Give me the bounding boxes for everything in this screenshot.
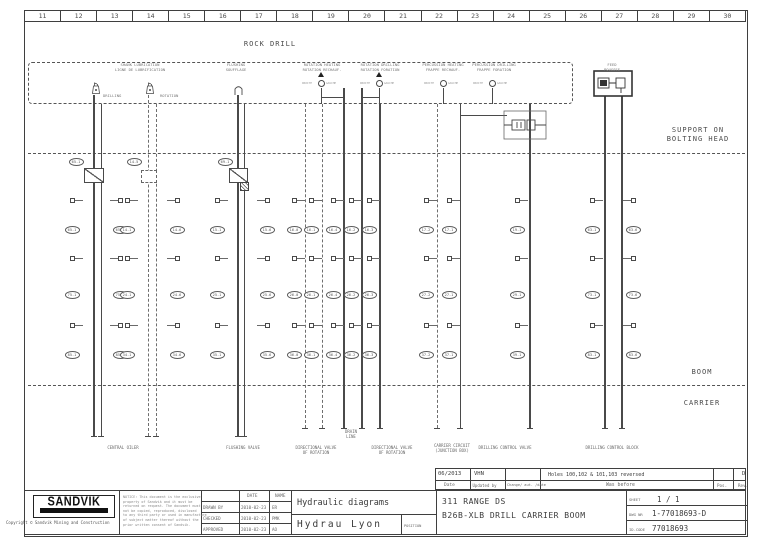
copyright-text: Copyright © Sandvik Mining and Construct… [6,520,110,525]
connector-line [460,115,507,116]
coupling-leader [623,325,631,326]
coupling-leader [297,325,305,326]
quick-coupling-square [118,198,123,203]
hose-ref-label: 34.1 [120,351,135,359]
hose-ref-label: 16.0 [287,226,302,234]
coupling-leader [110,200,118,201]
revision-rev-value: D [742,471,745,477]
zone-separator-line [28,153,745,154]
circle-valve-icon [489,80,496,87]
valve-side-label: DROITE [424,81,434,85]
line-end-tick [602,428,608,429]
revision-updated-by-header: Updated by [473,483,497,488]
hydraulic-line-dashed [156,104,157,436]
hose-ref-label: 83.1 [585,351,600,359]
hydraulic-line [379,104,381,428]
schematic-caption: DRAIN LINE [345,429,357,439]
approvals-line [201,523,291,524]
valve-side-label: GAUCHE [326,81,336,85]
position-label: POSITION [404,524,421,528]
tb-divider-h [626,520,747,521]
valve-side-label: GAUCHE [497,81,507,85]
coupling-leader [623,200,631,201]
coupling-leader [452,200,460,201]
revision-updated-by-value: VHN [474,471,484,477]
hydraulic-line [492,88,493,104]
coupling-leader [257,325,265,326]
approval-date: 2010-02-23 [241,516,266,521]
hose-ref-label: 65.1 [69,158,84,166]
hose-ref-label: 36.2 [344,351,359,359]
coupling-leader [314,200,322,201]
approval-name: AO [272,527,277,532]
legal-notice: NOTICE: This document is the exclusive p… [123,495,199,527]
circle-valve-icon [440,80,447,87]
hose-ref-label: 16.2 [344,226,359,234]
valve-side-label: DROITE [360,81,370,85]
component-label: SHANK LUBRICATION LIGNE DE LUBRIFICATION [115,63,165,73]
title-block: SANDVIK Copyright © Sandvik Mining and C… [24,490,746,535]
hose-ref-label: 14.5 [127,158,142,166]
line-end-tick [302,428,308,429]
coupling-leader [452,258,460,259]
schematic-caption: DIRECTIONAL VALVE OF ROTATION [296,445,337,455]
hatched-port [240,182,249,191]
hydraulic-line [244,104,245,436]
line-end-tick [457,428,463,429]
coupling-leader [110,325,118,326]
hydraulic-line [460,104,461,428]
schematic-caption: CARRIER CIRCUIT (JUNCTION BOX) [434,443,470,453]
schematic-caption: CENTRAL OILER [107,445,138,450]
hose-ref-label: 26.0 [287,291,302,299]
component-label: PERCUSSION HEATING FRAPPE RECHAUF. [422,63,463,73]
project-range: 311 RANGE DS [442,497,506,506]
coupling-leader [595,200,603,201]
quick-coupling-square [265,256,270,261]
coupling-leader [354,258,362,259]
hose-ref-label: 14.6 [170,226,185,234]
hose-ref-label: 37.2 [419,351,434,359]
coupling-leader [372,325,380,326]
line-end-tick [527,428,533,429]
feed-block-icon [593,70,633,97]
hose-ref-label: 15.6 [260,226,275,234]
schematic-layer: 65.165.614.114.615.115.616.016.116.416.2… [0,0,768,542]
support-on-bolting-head-label: SUPPORT ON BOLTING HEAD [652,126,744,144]
oiler-icon [90,80,102,94]
quick-coupling-square [175,198,180,203]
revision-date-value: 06/2013 [438,471,461,477]
hose-ref-label: 24.1 [120,291,135,299]
coupling-leader [429,325,437,326]
schematic-caption: DRILLING CONTROL BLOCK [586,445,639,450]
hose-ref-label: 37.1 [442,351,457,359]
quick-coupling-square [175,323,180,328]
connector-line [362,97,379,98]
component-label: ROTATION DRILLING ROTATION FORATION [361,63,400,73]
hydraulic-line [93,95,95,436]
tb-divider-h [626,505,747,506]
quick-coupling-square [631,256,636,261]
check-valve-assembly [503,110,547,140]
idcode-value: 77018693 [652,524,688,533]
hose-ref-label: 39.1 [510,351,525,359]
coupling-leader [623,258,631,259]
approvals-line [201,501,291,502]
revision-pos-header: Pos. [717,483,727,488]
carrier-label: CARRIER [672,399,732,407]
hose-ref-label: 63.1 [585,226,600,234]
sheet-label: SHEET [629,497,640,502]
coupling-leader [314,325,322,326]
hose-ref-label: 16.4 [326,226,341,234]
valve-block-dashed [141,170,157,183]
hose-ref-label: 15.1 [210,226,225,234]
coupling-leader [167,325,175,326]
hydraulic-line [529,104,531,428]
hose-ref-label: 63.6 [626,226,641,234]
coupling-leader [110,258,118,259]
line-end-tick [145,436,151,437]
hose-ref-label: 75.1 [65,291,80,299]
tb-divider [626,491,627,534]
office-name: Hydrau Lyon [297,519,382,530]
flow-arrow-icon [376,72,382,77]
line-end-tick [619,428,625,429]
revision-was-before-header: Was before [606,483,635,488]
revision-change-header: Change/ aut. /date [507,483,546,487]
valve-side-label: GAUCHE [448,81,458,85]
revision-col [733,469,734,489]
connector-line [321,97,344,98]
approvals-line [201,512,291,513]
coupling-leader [75,325,83,326]
hose-ref-label: 16.1 [304,226,319,234]
quick-coupling-square [631,198,636,203]
hose-ref-label: 16.3 [362,226,377,234]
department-name: Hydraulic diagrams [297,498,389,508]
coupling-leader [75,200,83,201]
coupling-leader [336,258,344,259]
component-label: FLUSHING SOUFFLAGE [226,63,247,73]
idcode-label: ID-CODE [629,527,645,532]
line-end-tick [377,428,383,429]
coupling-leader [130,200,138,201]
hose-ref-label: 35.6 [260,351,275,359]
coupling-leader [520,325,528,326]
line-end-tick [319,428,325,429]
approval-name: PMK [272,516,280,521]
approval-date: 2010-02-23 [241,505,266,510]
approval-role: DRAWN BY [203,505,223,510]
hydraulic-line-dashed [437,104,438,428]
coupling-leader [429,200,437,201]
coupling-leader [595,258,603,259]
hose-ref-label: 27.1 [442,291,457,299]
hydraulic-line [237,95,239,436]
line-end-tick [153,436,159,437]
schematic-caption: DIRECTIONAL VALVE OF ROTATION [372,445,413,455]
valve-block [84,168,104,183]
coupling-leader [257,258,265,259]
coupling-leader [429,258,437,259]
tb-divider [291,491,292,534]
hose-ref-label: 24.6 [170,291,185,299]
hose-ref-label: 34.6 [170,351,185,359]
hose-ref-label: 17.2 [419,226,434,234]
coupling-leader [372,200,380,201]
tb-divider-h [291,514,436,515]
coupling-leader [520,200,528,201]
hose-ref-label: 69.1 [218,158,233,166]
coupling-leader [314,258,322,259]
line-end-tick [434,428,440,429]
hydraulic-line-dashed [148,95,149,436]
hose-ref-label: 36.1 [304,351,319,359]
coupling-leader [220,200,228,201]
revision-strip: 06/2013 VHN Holes 100,102 & 101,103 reve… [435,468,746,490]
approvals-date-header: DATE [247,494,258,499]
coupling-leader [452,325,460,326]
hose-ref-label: 27.2 [419,291,434,299]
approval-role: CHECKED [203,516,221,521]
hydraulic-line-dashed [305,104,306,428]
hose-ref-label: 26.4 [326,291,341,299]
valve-side-label: GAUCHE [384,81,394,85]
hose-ref-label: 25.1 [210,291,225,299]
coupling-leader [167,258,175,259]
component-label: DRILLING [103,94,121,99]
tb-divider [436,491,437,534]
hose-ref-label: 26.3 [362,291,377,299]
flushing-icon [233,81,244,93]
hydraulic-line [321,88,322,104]
quick-coupling-square [175,256,180,261]
hose-ref-label: 36.0 [287,351,302,359]
approvals-table: DATE NAME DRAWN BY 2010-02-23 ER CHECKED… [201,491,291,534]
quick-coupling-square [265,198,270,203]
coupling-leader [336,200,344,201]
revision-col [470,469,471,489]
valve-side-label: DROITE [302,81,312,85]
hydraulic-line [443,88,444,104]
sandvik-logo-text: SANDVIK [34,495,114,509]
approval-role: APPROVED [203,527,223,532]
sandvik-logo: SANDVIK [33,495,115,518]
hose-ref-label: 35.1 [210,351,225,359]
component-label: PERCUSSION DRILLING FRAPPE FORATION [472,63,515,73]
circle-valve-icon [318,80,325,87]
schematic-caption: DRILLING CONTROL VALVE [479,445,532,450]
circle-valve-icon [376,80,383,87]
schematic-caption: FLUSHING VALVE [226,445,260,450]
quick-coupling-square [118,323,123,328]
boom-label: BOOM [680,368,724,376]
revision-date-header: Date [444,483,455,488]
hose-ref-label: 85.1 [65,351,80,359]
revision-rev-header: Rev. [738,483,748,488]
hydraulic-line [379,88,380,104]
approval-date: 2010-02-23 [241,527,266,532]
sheet-value: 1 / 1 [657,495,680,504]
approvals-line [239,491,240,534]
hydraulic-line [621,96,622,428]
quick-coupling-square [118,256,123,261]
hose-ref-label: 25.6 [260,291,275,299]
approvals-line [269,491,270,534]
hose-ref-label: 36.4 [326,351,341,359]
oiler-icon [144,80,156,94]
coupling-leader [354,325,362,326]
dwg-label: DWG NR [629,512,643,517]
tb-divider [119,491,120,534]
valve-block [229,168,248,183]
coupling-leader [595,325,603,326]
flow-arrow-icon [318,72,324,77]
quick-coupling-square [631,323,636,328]
line-end-tick [359,428,365,429]
hose-ref-label: 29.1 [510,291,525,299]
coupling-leader [75,258,83,259]
revision-col [505,469,506,489]
rock-drill-title: ROCK DRILL [235,40,305,48]
revision-row-divider [436,480,745,481]
line-end-tick [241,436,247,437]
hose-ref-label: 73.6 [626,291,641,299]
hydraulic-line-dashed [322,104,323,428]
coupling-leader [220,325,228,326]
coupling-leader [354,200,362,201]
coupling-leader [257,200,265,201]
hose-ref-label: 73.1 [585,291,600,299]
project-title: B26B-XLB DRILL CARRIER BOOM [442,511,586,520]
revision-col [713,469,714,489]
valve-side-label: DROITE [473,81,483,85]
hose-ref-label: 26.2 [344,291,359,299]
coupling-leader [297,200,305,201]
hose-ref-label: 65.1 [65,226,80,234]
approvals-name-header: NAME [275,494,286,499]
coupling-leader [336,325,344,326]
line-end-tick [91,436,97,437]
coupling-leader [372,258,380,259]
hose-ref-label: 36.3 [362,351,377,359]
hose-ref-label: 83.6 [626,351,641,359]
coupling-leader [297,258,305,259]
dwg-value: 1-77018693-D [652,509,706,518]
component-label: FEED POUSSEE [604,63,620,73]
coupling-leader [130,258,138,259]
drawing-sheet: 1112131415161718192021222324252627282930… [0,0,768,542]
hose-ref-label: 14.1 [120,226,135,234]
hose-ref-label: 19.1 [510,226,525,234]
zone-separator-line [28,385,745,386]
tb-divider [401,514,402,535]
line-end-tick [98,436,104,437]
coupling-leader [220,258,228,259]
coupling-leader [520,258,528,259]
revision-was-before-value: Holes 100,102 & 101,103 reversed [548,472,644,478]
approval-name: ER [272,505,277,510]
coupling-leader [167,200,175,201]
quick-coupling-square [265,323,270,328]
hydraulic-line [101,104,102,436]
coupling-leader [130,325,138,326]
component-label: ROTATION HEATING ROTATION RECHAUF. [303,63,342,73]
component-label: ROTATION [160,94,178,99]
hose-ref-label: 26.1 [304,291,319,299]
hydraulic-line [604,96,605,428]
hose-ref-label: 17.1 [442,226,457,234]
